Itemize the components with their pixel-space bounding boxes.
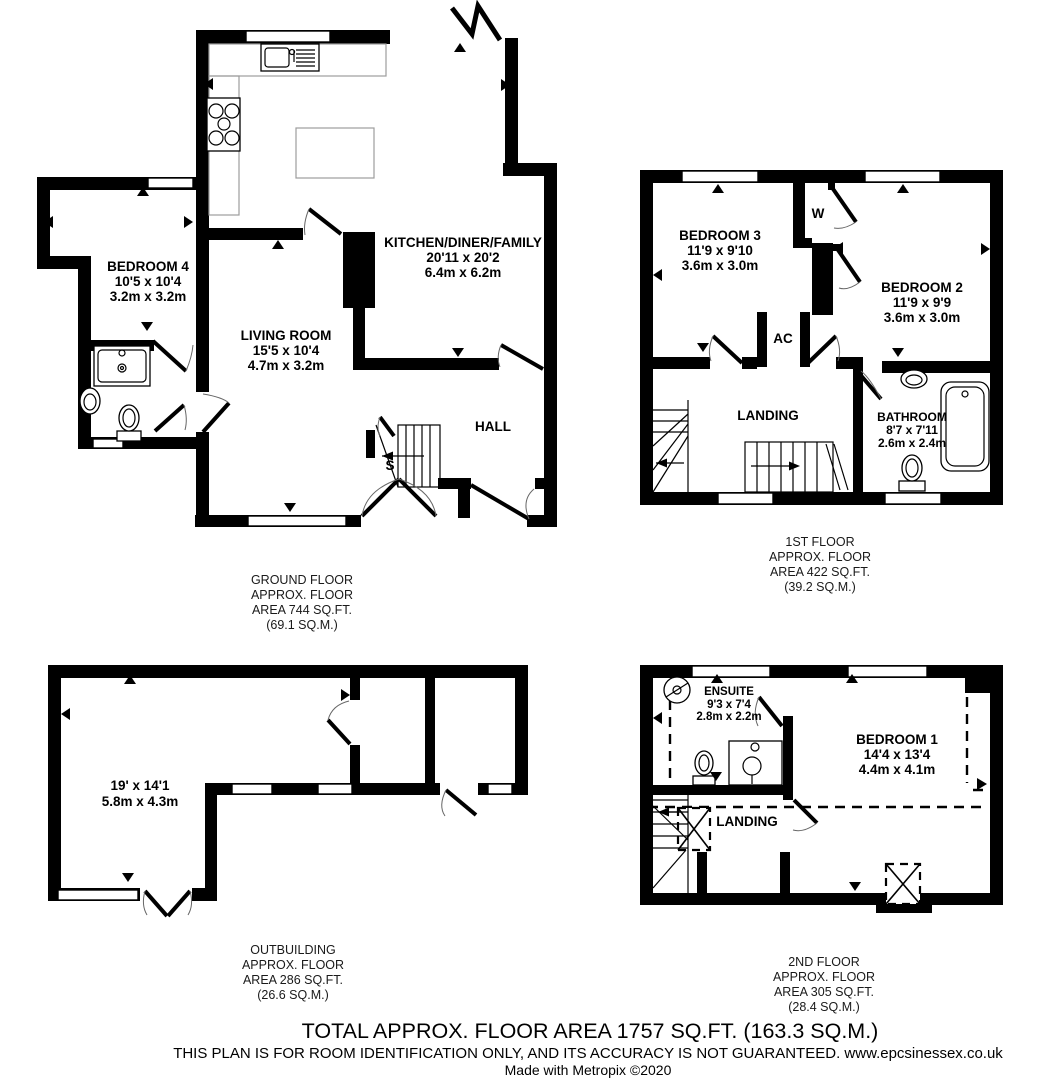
room-label-bedroom2: BEDROOM 2 bbox=[881, 280, 963, 295]
french-doors bbox=[143, 891, 191, 916]
first-floor-plan: BEDROOM 3 11'9 x 9'10 3.6m x 3.0m BEDROO… bbox=[640, 170, 1003, 505]
svg-text:AREA 305 SQ.FT.: AREA 305 SQ.FT. bbox=[774, 985, 874, 999]
room-dims-imperial: 11'9 x 9'9 bbox=[893, 295, 951, 310]
bathroom-sink-icon bbox=[901, 370, 927, 388]
room-dims-metric: 6.4m x 6.2m bbox=[425, 265, 502, 280]
second-floor-plan: ENSUITE 9'3 x 7'4 2.8m x 2.2m BEDROOM 1 … bbox=[640, 665, 1003, 913]
ground-floor-caption: GROUND FLOOR APPROX. FLOOR AREA 744 SQ.F… bbox=[251, 573, 353, 632]
island bbox=[296, 128, 374, 178]
vanity-sink-icon bbox=[729, 741, 782, 785]
eaves-arrow bbox=[977, 778, 987, 790]
toilet-icon bbox=[899, 455, 925, 491]
window bbox=[232, 784, 272, 794]
wardrobe-door bbox=[836, 247, 860, 282]
room-dims-imperial: 11'9 x 9'10 bbox=[687, 243, 753, 258]
window bbox=[865, 171, 940, 182]
room-dims-metric: 2.8m x 2.2m bbox=[696, 711, 761, 723]
svg-text:AREA 744 SQ.FT.: AREA 744 SQ.FT. bbox=[252, 603, 352, 617]
svg-text:APPROX. FLOOR: APPROX. FLOOR bbox=[242, 958, 344, 972]
svg-text:APPROX. FLOOR: APPROX. FLOOR bbox=[251, 588, 353, 602]
room-dims-metric: 2.6m x 2.4m bbox=[878, 436, 946, 450]
svg-text:(26.6 SQ.M.): (26.6 SQ.M.) bbox=[257, 988, 329, 1002]
room-dims-metric: 4.7m x 3.2m bbox=[248, 358, 325, 373]
basin-icon bbox=[80, 388, 100, 414]
room-dims-imperial: 19' x 14'1 bbox=[111, 778, 170, 793]
outbuilding-plan: 19' x 14'1 5.8m x 4.3m bbox=[48, 665, 528, 916]
room-label-bedroom3: BEDROOM 3 bbox=[679, 228, 761, 243]
bifold-door bbox=[452, 6, 500, 40]
window bbox=[488, 784, 512, 794]
room-dims-imperial: 14'4 x 13'4 bbox=[864, 747, 931, 762]
room-label-bathroom: BATHROOM bbox=[877, 410, 947, 424]
svg-text:GROUND FLOOR: GROUND FLOOR bbox=[251, 573, 353, 587]
toilet-icon bbox=[693, 751, 715, 785]
svg-text:OUTBUILDING: OUTBUILDING bbox=[250, 943, 335, 957]
stair-direction-arrow bbox=[656, 459, 667, 468]
room-dims-metric: 3.6m x 3.0m bbox=[884, 310, 961, 325]
second-floor-caption: 2ND FLOOR APPROX. FLOOR AREA 305 SQ.FT. … bbox=[773, 955, 875, 1014]
room-label-wardrobe: W bbox=[820, 271, 833, 286]
svg-text:APPROX. FLOOR: APPROX. FLOOR bbox=[769, 550, 871, 564]
svg-text:(28.4 SQ.M.): (28.4 SQ.M.) bbox=[788, 1000, 860, 1014]
room-dims-metric: 3.6m x 3.0m bbox=[682, 258, 759, 273]
svg-text:(69.1 SQ.M.): (69.1 SQ.M.) bbox=[266, 618, 338, 632]
stair-direction-arrow bbox=[658, 808, 669, 817]
shower-icon bbox=[664, 677, 690, 703]
window bbox=[148, 178, 193, 188]
chimney-breast bbox=[965, 667, 991, 693]
room-label-airing-cupboard: AC bbox=[773, 331, 793, 346]
room-label-kitchen: KITCHEN/DINER/FAMILY bbox=[384, 235, 542, 250]
room-label-ensuite: ENSUITE bbox=[704, 686, 754, 698]
room-dims-imperial: 9'3 x 7'4 bbox=[707, 699, 751, 711]
kitchen-fixtures bbox=[207, 44, 386, 215]
footer: TOTAL APPROX. FLOOR AREA 1757 SQ.FT. (16… bbox=[173, 1019, 1003, 1078]
window bbox=[718, 493, 773, 504]
ground-stairs bbox=[376, 425, 440, 487]
room-label-living: LIVING ROOM bbox=[241, 328, 332, 343]
window bbox=[58, 890, 138, 900]
toilet-icon bbox=[117, 405, 141, 441]
window bbox=[248, 516, 346, 526]
room-dims-metric: 3.2m x 3.2m bbox=[110, 289, 187, 304]
stair-direction-arrow bbox=[789, 462, 800, 471]
wardrobe-door bbox=[831, 186, 856, 222]
total-area-text: TOTAL APPROX. FLOOR AREA 1757 SQ.FT. (16… bbox=[302, 1019, 879, 1043]
room-label-wardrobe: W bbox=[812, 206, 825, 221]
floorplan-page: KITCHEN/DINER/FAMILY 20'11 x 20'2 6.4m x… bbox=[0, 0, 1048, 1080]
room-label-landing: LANDING bbox=[716, 814, 778, 829]
room-dims-imperial: 8'7 x 7'11 bbox=[886, 423, 938, 437]
bathtub-icon bbox=[941, 382, 989, 471]
room-label-hall: HALL bbox=[475, 419, 511, 434]
window bbox=[682, 171, 758, 182]
room-dims-imperial: 10'5 x 10'4 bbox=[115, 274, 182, 289]
second-walls bbox=[640, 665, 1003, 913]
svg-text:1ST FLOOR: 1ST FLOOR bbox=[785, 535, 854, 549]
first-room-labels: BEDROOM 3 11'9 x 9'10 3.6m x 3.0m BEDROO… bbox=[679, 206, 963, 450]
room-label-bedroom4: BEDROOM 4 bbox=[107, 259, 189, 274]
svg-text:(39.2 SQ.M.): (39.2 SQ.M.) bbox=[784, 580, 856, 594]
kitchen-sink-icon bbox=[261, 44, 319, 71]
hob-icon bbox=[207, 98, 240, 151]
shower-tray-icon bbox=[94, 346, 150, 386]
first-floor-caption: 1ST FLOOR APPROX. FLOOR AREA 422 SQ.FT. … bbox=[769, 535, 871, 594]
credit-text: Made with Metropix ©2020 bbox=[505, 1062, 672, 1078]
outbuilding-caption: OUTBUILDING APPROX. FLOOR AREA 286 SQ.FT… bbox=[242, 943, 344, 1002]
room-dims-metric: 4.4m x 4.1m bbox=[859, 762, 936, 777]
room-dims-imperial: 20'11 x 20'2 bbox=[426, 250, 499, 265]
chimney-breast bbox=[343, 232, 375, 308]
disclaimer-text: THIS PLAN IS FOR ROOM IDENTIFICATION ONL… bbox=[173, 1045, 1003, 1062]
window bbox=[885, 493, 941, 504]
roof-window-icon bbox=[678, 808, 920, 904]
svg-text:2ND FLOOR: 2ND FLOOR bbox=[788, 955, 860, 969]
window bbox=[246, 31, 330, 42]
french-doors bbox=[362, 479, 436, 516]
floorplan-canvas: KITCHEN/DINER/FAMILY 20'11 x 20'2 6.4m x… bbox=[0, 0, 1048, 1080]
room-dims-metric: 5.8m x 4.3m bbox=[102, 794, 179, 809]
room-label-bedroom1: BEDROOM 1 bbox=[856, 732, 938, 747]
ground-floor-plan: KITCHEN/DINER/FAMILY 20'11 x 20'2 6.4m x… bbox=[37, 6, 557, 527]
front-door bbox=[471, 485, 529, 519]
window bbox=[692, 666, 770, 677]
room-label-landing: LANDING bbox=[737, 408, 799, 423]
window bbox=[848, 666, 927, 677]
room-dims-imperial: 15'5 x 10'4 bbox=[253, 343, 320, 358]
svg-text:APPROX. FLOOR: APPROX. FLOOR bbox=[773, 970, 875, 984]
window bbox=[318, 784, 352, 794]
svg-text:AREA 286 SQ.FT.: AREA 286 SQ.FT. bbox=[243, 973, 343, 987]
room-label-store: S bbox=[385, 458, 394, 473]
svg-text:AREA 422 SQ.FT.: AREA 422 SQ.FT. bbox=[770, 565, 870, 579]
outbuilding-room-labels: 19' x 14'1 5.8m x 4.3m bbox=[102, 778, 179, 809]
